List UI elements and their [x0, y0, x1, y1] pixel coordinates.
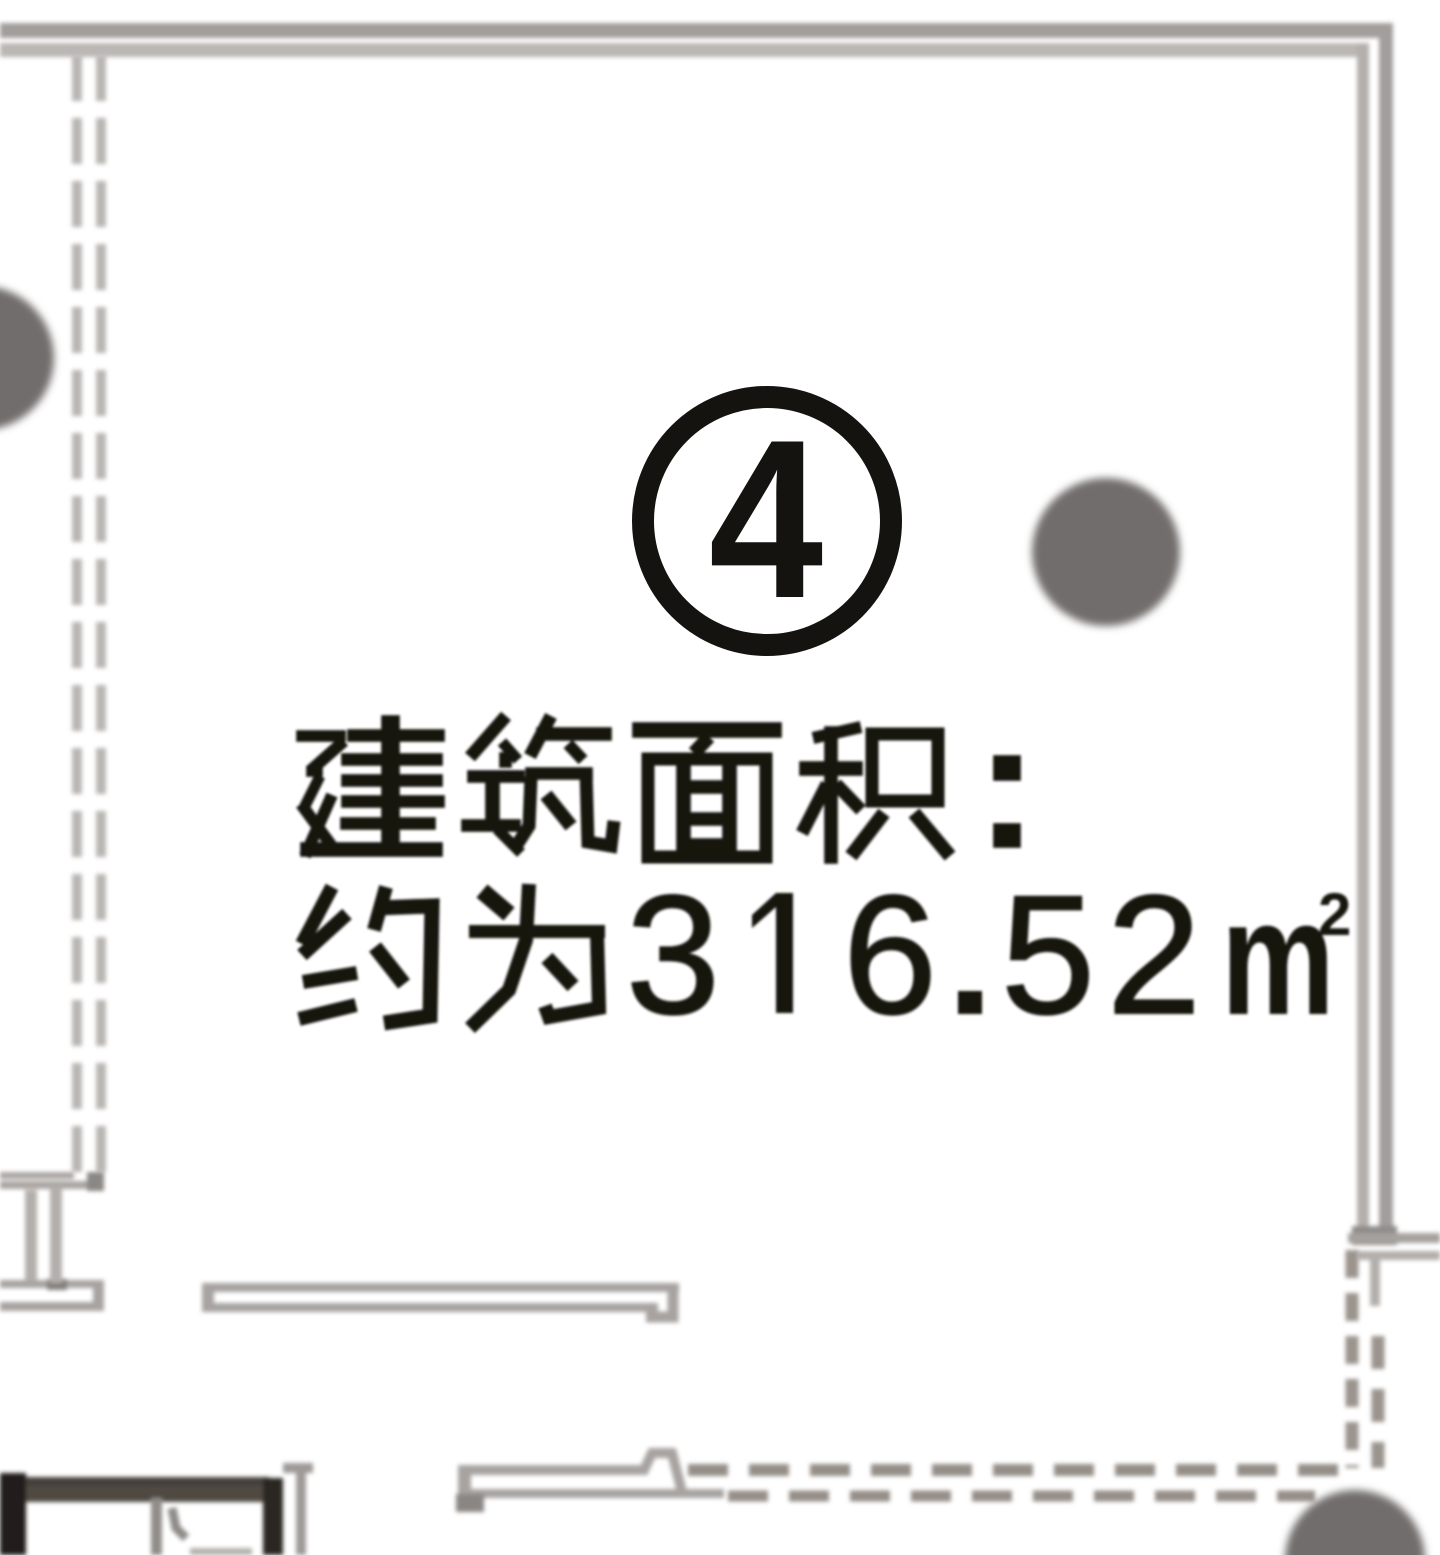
svg-text:3: 3	[626, 860, 720, 1049]
svg-text:4: 4	[709, 392, 823, 645]
svg-text:6: 6	[843, 860, 937, 1049]
svg-text:2: 2	[1107, 860, 1201, 1049]
svg-text:2: 2	[1318, 881, 1351, 948]
svg-text:5: 5	[1001, 860, 1095, 1049]
